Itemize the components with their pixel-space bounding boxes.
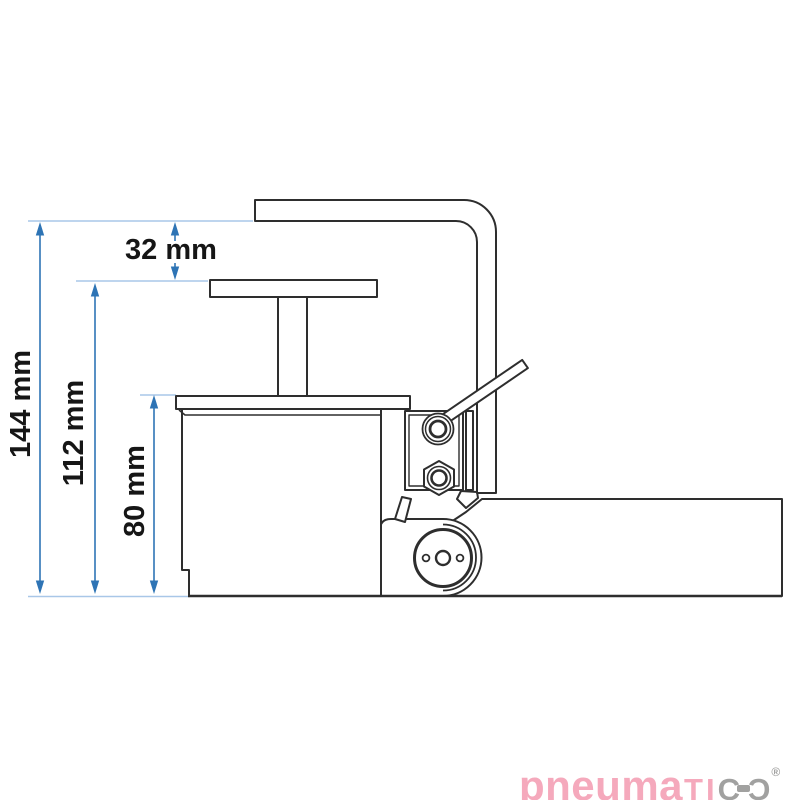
dimension-112: 112 mm [58,283,99,594]
dim-label-saddle-height: 112 mm [58,380,90,486]
round-fitting-bore [430,421,446,437]
arrowhead-down-icon [36,581,44,595]
dimension-80: 80 mm [119,395,158,594]
logo-o-glyph-icon: C [748,769,770,800]
arrowhead-down-icon [150,581,158,595]
arrowhead-down-icon [171,267,179,281]
pivot-hole-right [457,555,464,562]
saddle-pad [210,280,377,297]
arrowhead-up-icon [150,395,158,409]
dim-label-body-height: 80 mm [119,445,151,537]
fitting-block-strip [466,411,473,490]
foot-pedal-plate [445,499,782,596]
dim-label-total-height: 144 mm [5,350,37,458]
logo-text-caps: TI [684,772,718,800]
jack-drawing [176,200,782,596]
dimension-144: 144 mm [5,222,44,594]
jack-body [182,409,381,596]
arrowhead-up-icon [91,283,99,297]
dimension-32: 32 mm [125,222,217,280]
pivot-center-hole [436,551,450,565]
body-cap [176,396,410,409]
dim-label-top-offset: 32 mm [125,234,217,266]
page: 144 mm 112 mm 80 mm 32 mm [0,0,800,800]
registered-trademark-icon: ® [771,765,780,779]
brand-logo: pneumaTICC® [519,751,780,797]
arrowhead-up-icon [36,222,44,236]
arrowhead-down-icon [91,581,99,595]
logo-text-lower: pneuma [519,762,683,800]
technical-drawing-canvas: 144 mm 112 mm 80 mm 32 mm [0,0,800,800]
saddle-stem [278,297,307,396]
pivot-hole-left [423,555,430,562]
hex-fitting-bore [432,471,447,486]
